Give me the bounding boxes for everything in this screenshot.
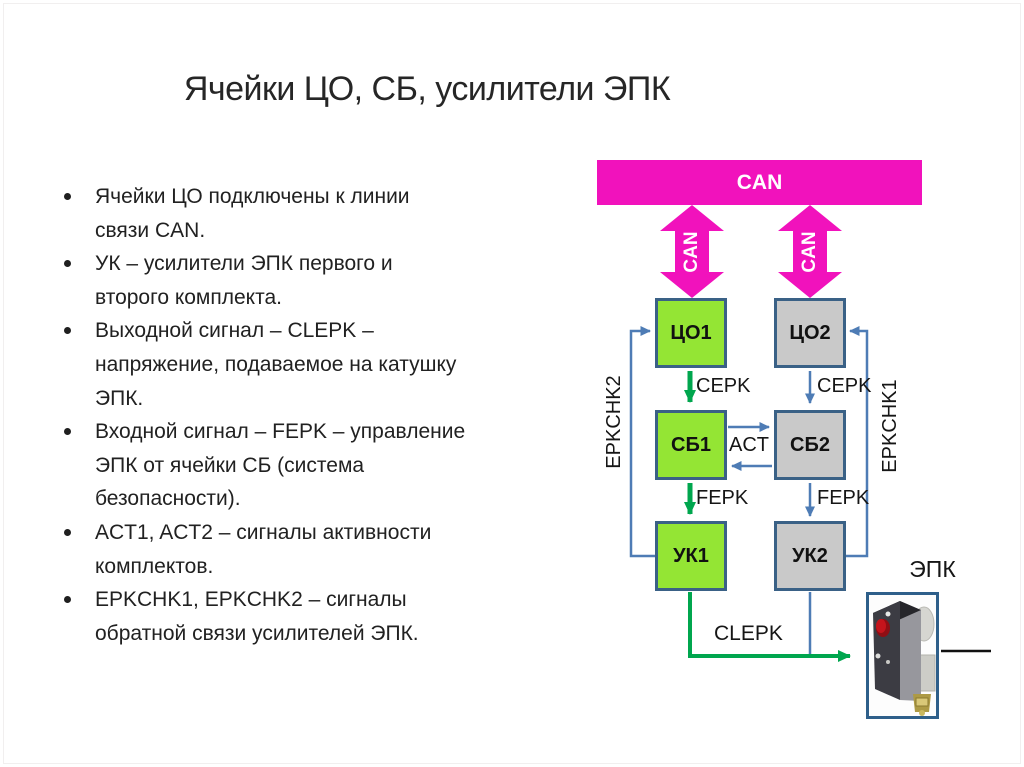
slide: { "slide": { "title": "Ячейки ЦО, СБ, ус… (0, 0, 1024, 767)
can-bus-label: CAN (737, 171, 783, 195)
bullet-item: Ячейки ЦО подключены к линии связи CAN. (56, 180, 526, 247)
label-fepk-right: FEPK (817, 487, 869, 510)
bullet-text: Выходной сигнал – CLEPK – напряжение, по… (95, 314, 456, 415)
bullet-item: EPKCHK1, EPKCHK2 – сигналы обратной связ… (56, 583, 526, 650)
bullet-list: Ячейки ЦО подключены к линии связи CAN. … (56, 180, 526, 650)
bullet-text: Ячейки ЦО подключены к линии связи CAN. (95, 180, 410, 247)
label-cepk-left: CEPK (696, 375, 750, 398)
can-link-right-label: CAN (799, 207, 821, 297)
epk-brass-tip (919, 710, 925, 716)
box-uk1-label: УК1 (673, 545, 709, 568)
label-act: ACT (729, 434, 769, 457)
bullet-item: УК – усилители ЭПК первого и второго ком… (56, 247, 526, 314)
box-co1-label: ЦО1 (670, 322, 711, 345)
bullet-dot (64, 428, 71, 435)
epk-brass-nut (916, 698, 928, 706)
box-uk2-label: УК2 (792, 545, 828, 568)
label-clepk: CLEPK (714, 622, 783, 646)
box-sb2-label: СБ2 (790, 434, 830, 457)
box-co2-label: ЦО2 (789, 322, 830, 345)
bullet-dot (64, 596, 71, 603)
epk-knob (886, 612, 891, 617)
label-epkchk2: EPKCHK2 (601, 347, 627, 497)
bullet-dot (64, 327, 71, 334)
bullet-text: EPKCHK1, EPKCHK2 – сигналы обратной связ… (95, 583, 419, 650)
box-sb1-label: СБ1 (671, 434, 711, 457)
bullet-text: Входной сигнал – FEPK – управление ЭПК о… (95, 415, 465, 516)
bullet-text: ACT1, ACT2 – сигналы активности комплект… (95, 516, 431, 583)
bullet-item: ACT1, ACT2 – сигналы активности комплект… (56, 516, 526, 583)
label-epkchk1: EPKCHK1 (877, 351, 903, 501)
epk-device-frame (866, 592, 939, 719)
label-cepk-right: CEPK (817, 375, 871, 398)
bullet-dot (64, 260, 71, 267)
label-epk-device: ЭПК (895, 556, 970, 583)
bullet-dot (64, 529, 71, 536)
box-co2: ЦО2 (774, 298, 846, 368)
box-sb1: СБ1 (655, 410, 727, 480)
epk-device-photo (869, 595, 936, 716)
epk-knob (876, 654, 881, 659)
box-uk1: УК1 (655, 521, 727, 591)
can-bus-bar: CAN (597, 160, 922, 205)
line-epkchk1-feedback (846, 331, 867, 556)
box-uk2: УК2 (774, 521, 846, 591)
epk-knob (886, 660, 890, 664)
box-sb2: СБ2 (774, 410, 846, 480)
bullet-dot (64, 193, 71, 200)
box-co1: ЦО1 (655, 298, 727, 368)
bullet-text: УК – усилители ЭПК первого и второго ком… (95, 247, 393, 314)
can-link-left-label: CAN (681, 207, 703, 297)
epk-red-handle-top (876, 619, 886, 633)
bullet-item: Входной сигнал – FEPK – управление ЭПК о… (56, 415, 526, 516)
label-fepk-left: FEPK (696, 487, 748, 510)
bullet-item: Выходной сигнал – CLEPK – напряжение, по… (56, 314, 526, 415)
line-epkchk2-feedback (631, 331, 655, 556)
page-title: Ячейки ЦО, СБ, усилители ЭПК (0, 70, 854, 109)
